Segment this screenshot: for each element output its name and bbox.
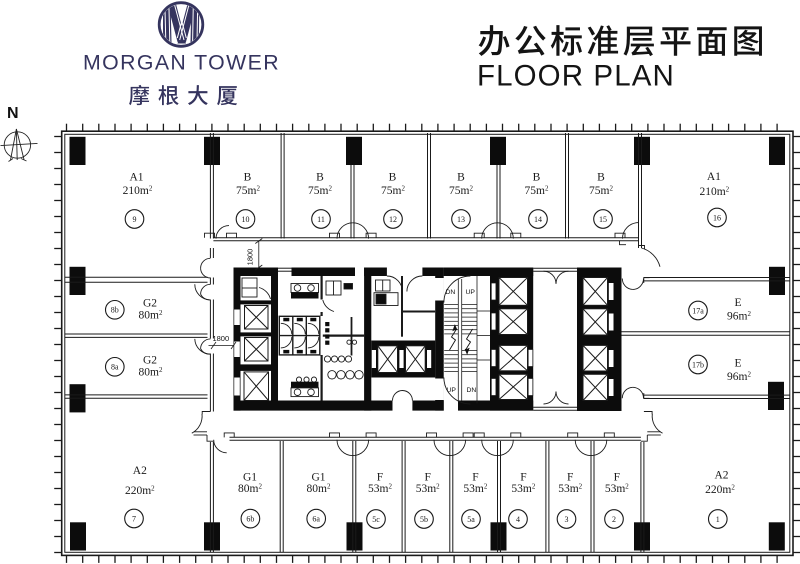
svg-text:15: 15	[599, 215, 607, 224]
svg-text:A2: A2	[133, 465, 147, 477]
svg-text:8a: 8a	[111, 363, 119, 372]
svg-text:B: B	[533, 172, 541, 184]
svg-text:B: B	[316, 172, 324, 184]
svg-text:MORGAN TOWER: MORGAN TOWER	[83, 51, 280, 75]
svg-text:F: F	[614, 471, 620, 483]
svg-text:5a: 5a	[467, 515, 475, 524]
svg-text:G2: G2	[143, 355, 157, 367]
svg-text:1: 1	[716, 515, 720, 524]
svg-text:B: B	[597, 172, 605, 184]
svg-text:G1: G1	[243, 471, 257, 483]
svg-text:F: F	[567, 471, 573, 483]
svg-text:220m2: 220m2	[125, 484, 155, 497]
svg-text:1800: 1800	[246, 249, 255, 266]
svg-text:17b: 17b	[692, 360, 704, 369]
svg-text:7: 7	[132, 514, 136, 523]
svg-text:11: 11	[317, 215, 325, 224]
svg-text:8b: 8b	[111, 306, 119, 315]
svg-text:F: F	[377, 471, 383, 483]
svg-text:F: F	[472, 471, 478, 483]
svg-text:G1: G1	[311, 471, 325, 483]
svg-text:A1: A1	[707, 171, 721, 183]
svg-text:F: F	[520, 471, 526, 483]
svg-text:N: N	[7, 105, 19, 122]
svg-text:13: 13	[457, 215, 465, 224]
svg-text:UP: UP	[466, 289, 476, 296]
svg-text:210m2: 210m2	[123, 185, 153, 198]
svg-text:12: 12	[389, 215, 397, 224]
svg-text:E: E	[734, 358, 741, 370]
svg-text:4: 4	[516, 515, 520, 524]
svg-text:9: 9	[133, 215, 137, 224]
svg-text:G2: G2	[143, 298, 157, 310]
svg-text:FLOOR PLAN: FLOOR PLAN	[477, 60, 675, 93]
svg-text:DN: DN	[467, 387, 477, 394]
svg-text:E: E	[734, 297, 741, 309]
svg-text:B: B	[389, 172, 397, 184]
svg-text:A2: A2	[714, 469, 728, 481]
svg-text:1800: 1800	[212, 334, 229, 343]
svg-text:2: 2	[612, 515, 616, 524]
svg-text:F: F	[424, 471, 430, 483]
svg-text:A1: A1	[129, 172, 143, 184]
svg-text:3: 3	[565, 515, 569, 524]
svg-text:14: 14	[534, 215, 542, 224]
svg-text:10: 10	[242, 215, 250, 224]
svg-text:5c: 5c	[372, 515, 380, 524]
svg-text:16: 16	[713, 213, 721, 222]
svg-text:5b: 5b	[420, 515, 428, 524]
svg-text:17a: 17a	[692, 306, 704, 315]
svg-text:220m2: 220m2	[705, 484, 735, 497]
svg-text:B: B	[244, 172, 252, 184]
svg-text:6b: 6b	[246, 514, 254, 523]
svg-text:6a: 6a	[312, 514, 320, 523]
svg-text:210m2: 210m2	[699, 186, 729, 199]
svg-text:UP: UP	[447, 387, 457, 394]
svg-text:B: B	[457, 172, 465, 184]
